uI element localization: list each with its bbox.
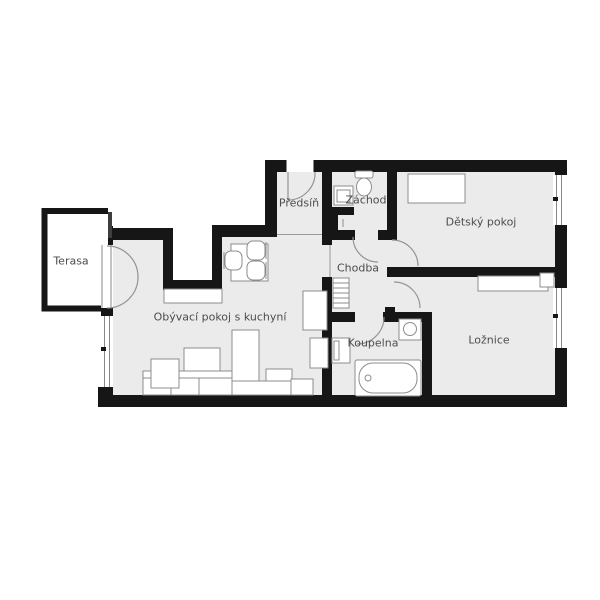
bathroom-sink	[399, 319, 421, 340]
screenshot-root: instinkt REALITY	[0, 0, 600, 600]
kitchen-counter-top	[164, 289, 222, 303]
bathtub	[355, 360, 421, 396]
window-childroom	[553, 175, 567, 225]
chair	[247, 261, 265, 280]
window-livingroom	[101, 316, 113, 387]
toilet-icon	[355, 171, 373, 196]
floor-plan: Terasa Obývací pokoj s kuchyní Předsíň Z…	[0, 0, 600, 600]
hallway-shelf	[333, 278, 349, 308]
coffee-table	[184, 348, 220, 371]
terrace-door-opening	[101, 245, 113, 308]
room-label-zachod: Záchod	[345, 194, 386, 207]
room-label-detsky: Dětský pokoj	[446, 216, 517, 229]
chair	[247, 241, 265, 260]
floor-plan-drawing	[0, 0, 600, 600]
room-label-terasa: Terasa	[53, 255, 88, 268]
wardrobe-childroom	[408, 174, 465, 203]
corner-shaft	[540, 273, 554, 287]
kitchen-unit-corner	[291, 379, 313, 395]
entry-door-opening	[286, 160, 314, 172]
chair	[225, 251, 242, 270]
fridge	[303, 291, 327, 330]
window-bedroom	[553, 288, 567, 348]
room-label-predsin: Předsíň	[279, 197, 319, 210]
room-label-koupelna: Koupelna	[348, 337, 399, 350]
dining-set	[224, 241, 268, 281]
room-label-chodba: Chodba	[337, 262, 379, 275]
wardrobe-bedroom	[478, 276, 548, 291]
kitchen-unit	[310, 338, 328, 368]
room-label-living: Obývací pokoj s kuchyní	[154, 311, 287, 324]
room-label-loznice: Ložnice	[468, 334, 509, 347]
tall-cabinet	[232, 330, 259, 385]
armchair	[151, 359, 179, 388]
